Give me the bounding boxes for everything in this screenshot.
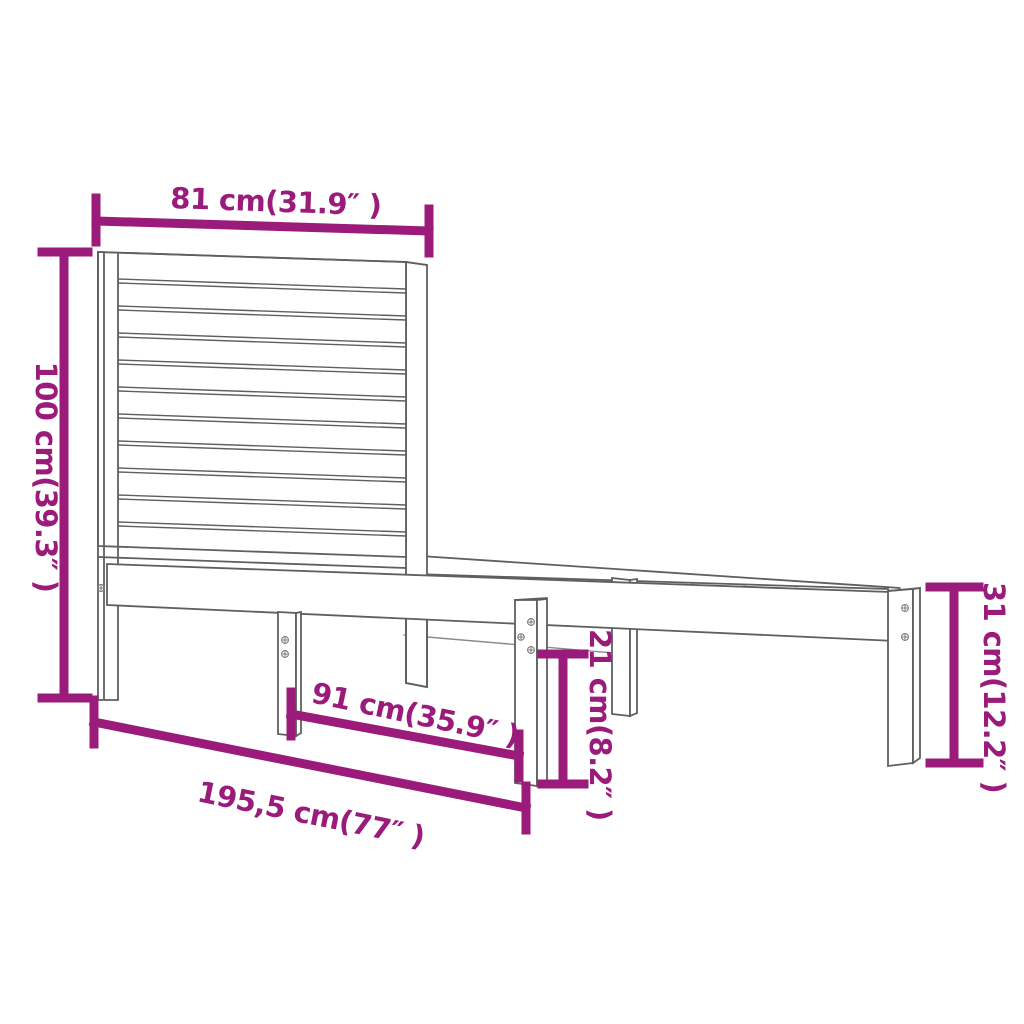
screw-icon [98, 585, 105, 592]
headboard [98, 252, 427, 700]
screw-icon [902, 605, 909, 612]
dimension-foot-height [930, 587, 979, 763]
screw-icon [528, 647, 535, 654]
dimension-diagram: 81 cm(31.9″ ) 100 cm(39.3″ ) 31 cm(12.2″… [0, 0, 1024, 1024]
dimension-line [96, 221, 429, 231]
label-foot-height: 31 cm(12.2″ ) [977, 582, 1011, 793]
label-total-length: 195,5 cm(77″ ) [195, 775, 428, 854]
headboard-right-post [406, 262, 427, 687]
screw-icon [528, 619, 535, 626]
label-headboard-width: 81 cm(31.9″ ) [170, 181, 382, 222]
headboard-panel [98, 252, 406, 557]
screw-icon [282, 637, 289, 644]
screw-icon [518, 634, 524, 640]
screw-icon [902, 634, 909, 641]
screw-icon [282, 651, 289, 658]
bed-frame-drawing: 81 cm(31.9″ ) 100 cm(39.3″ ) 31 cm(12.2″… [0, 0, 1024, 1024]
label-headboard-height: 100 cm(39.3″ ) [29, 362, 63, 593]
dimension-rail-height [542, 654, 584, 784]
near-side-rail [107, 564, 896, 641]
foot-end-leg [888, 588, 920, 766]
label-rail-height: 21 cm(8.2″ ) [583, 629, 617, 821]
